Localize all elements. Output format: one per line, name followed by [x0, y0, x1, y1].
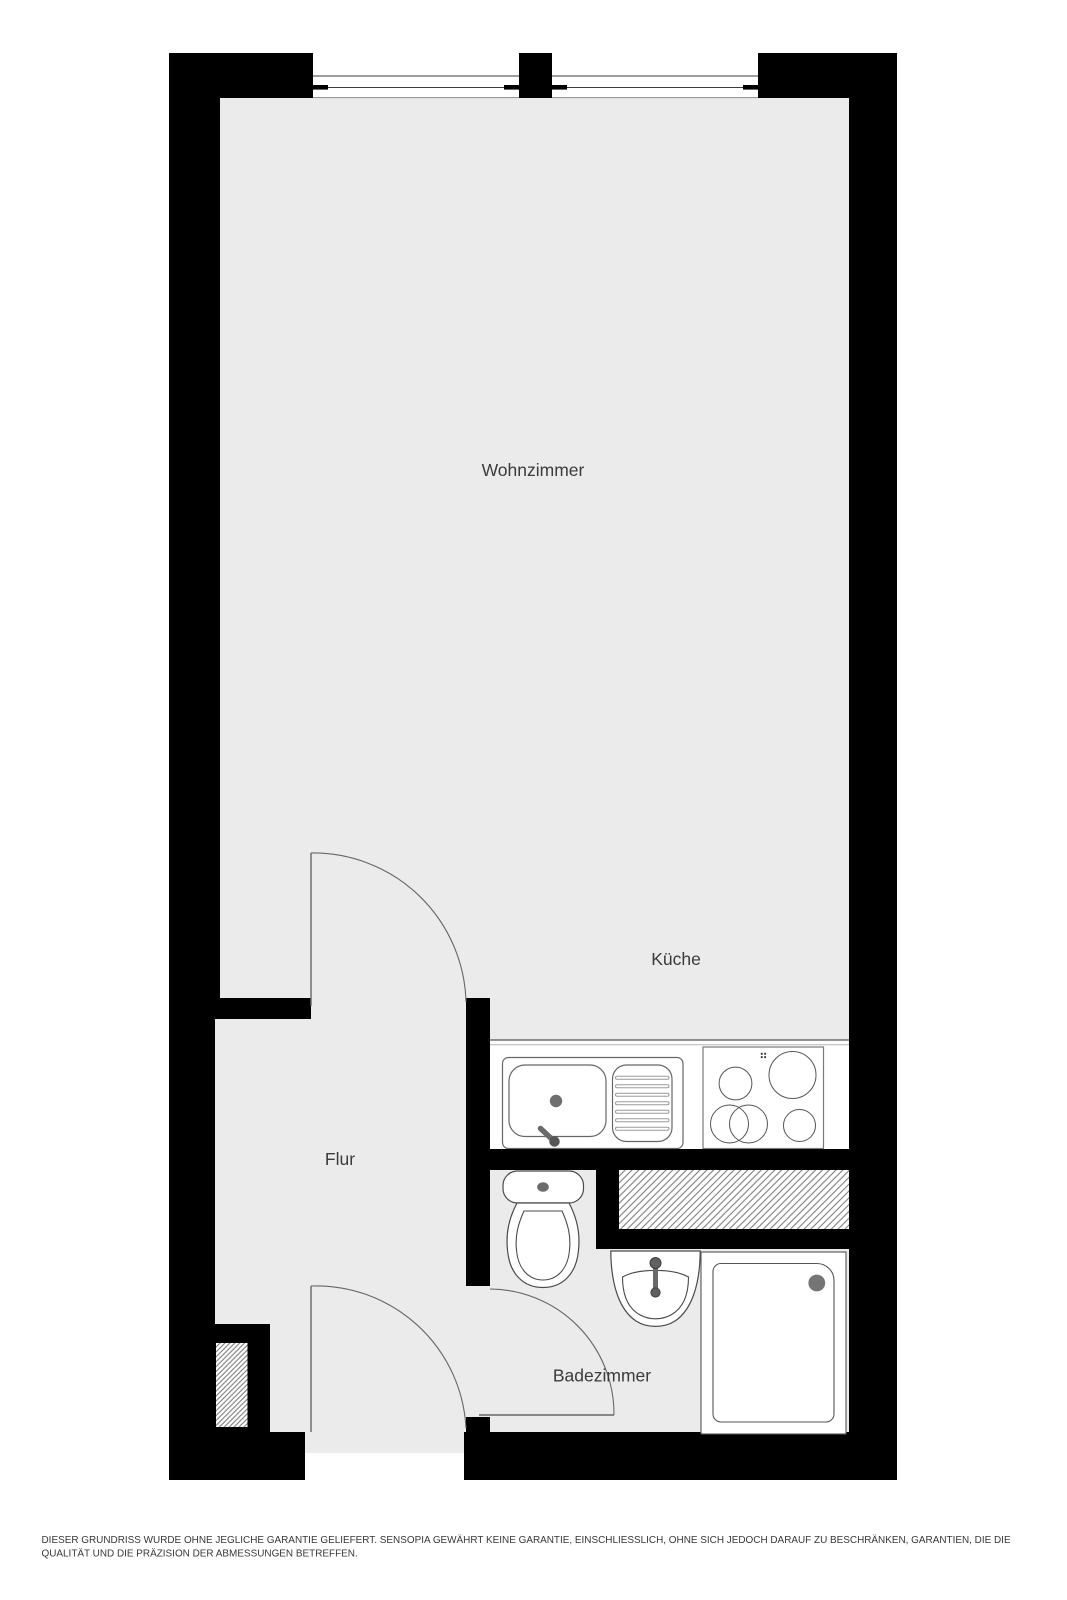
- svg-text:Wohnzimmer: Wohnzimmer: [482, 460, 585, 480]
- svg-text:Küche: Küche: [651, 949, 701, 969]
- svg-text:QUALITÄT UND DIE PRÄZISION DER: QUALITÄT UND DIE PRÄZISION DER ABMESSUNG…: [42, 1548, 358, 1559]
- svg-text:DIESER GRUNDRISS WURDE OHNE JE: DIESER GRUNDRISS WURDE OHNE JEGLICHE GAR…: [42, 1535, 1011, 1546]
- svg-text:Badezimmer: Badezimmer: [553, 1366, 651, 1386]
- svg-text:Flur: Flur: [325, 1149, 355, 1169]
